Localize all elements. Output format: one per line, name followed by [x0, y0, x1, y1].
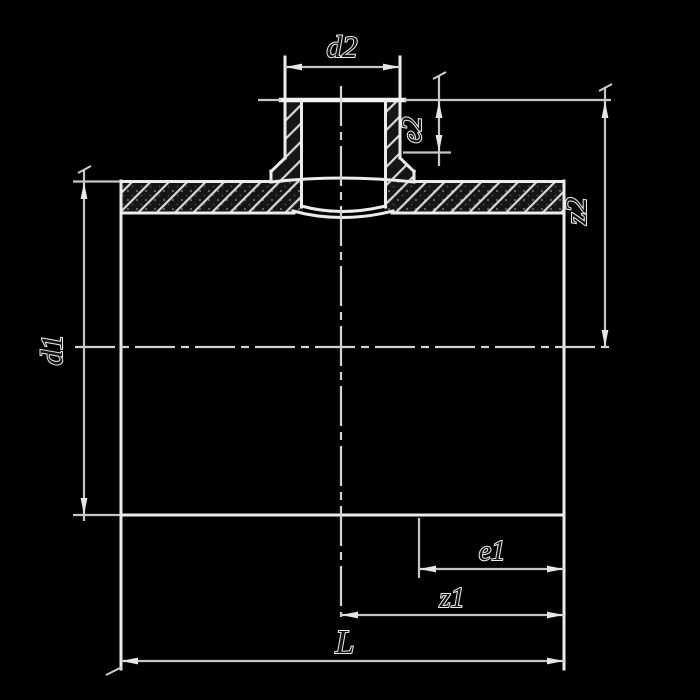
dim-label-e1: e1 [479, 536, 505, 567]
dimension-z2: z2 [558, 84, 612, 347]
dimension-d1: d1 [34, 166, 91, 521]
d1-arrow-top [81, 182, 88, 199]
left-wall-end-tick [106, 667, 122, 675]
d1-arrow-bottom [81, 498, 88, 515]
e2-arrow-bottom [436, 135, 443, 152]
dim-label-d1: d1 [34, 335, 69, 366]
dimension-e2: e2 [397, 72, 451, 166]
L-arrow-left [121, 658, 138, 665]
dim-label-L: L [335, 624, 355, 661]
dim-label-e2: e2 [397, 117, 428, 143]
z2-arrow-top [602, 101, 609, 118]
d2-arrow-right [383, 64, 400, 71]
z1-arrow-left [341, 612, 358, 619]
dimension-d2: d2 [285, 29, 400, 70]
dimension-e1: e1 [419, 518, 564, 578]
dim-label-z2: z2 [558, 197, 593, 226]
tee-fitting-section-drawing: d2 e2 z2 d1 e1 z1 [0, 0, 700, 700]
d2-arrow-left [285, 64, 302, 71]
e1-arrow-left [419, 566, 436, 573]
dim-label-d2: d2 [327, 29, 358, 64]
dim-label-z1: z1 [439, 583, 465, 614]
body-outline [73, 181, 564, 675]
z1-arrow-right [547, 612, 564, 619]
dimension-L: L [121, 624, 564, 664]
dimension-z1: z1 [341, 583, 564, 618]
centerlines [75, 86, 610, 617]
e1-arrow-right [547, 566, 564, 573]
L-arrow-right [547, 658, 564, 665]
branch-left-wall-hatch [260, 95, 320, 190]
z2-arrow-bottom [602, 330, 609, 347]
drawing-canvas: d2 e2 z2 d1 e1 z1 [0, 0, 700, 700]
e2-arrow-top [436, 101, 443, 118]
